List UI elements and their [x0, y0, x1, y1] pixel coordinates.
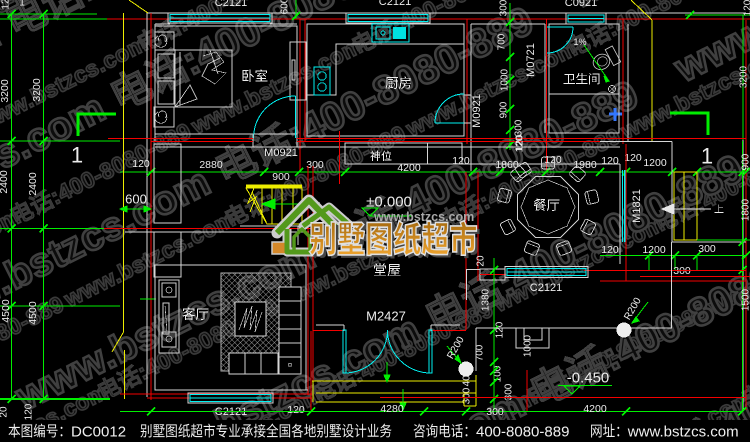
svg-text:120: 120: [452, 155, 470, 167]
svg-text:120: 120: [601, 155, 619, 167]
svg-text:12: 12: [1, 0, 12, 10]
svg-text:-0.450: -0.450: [567, 370, 610, 387]
svg-text:1: 1: [19, 0, 25, 9]
svg-text:1%: 1%: [573, 37, 586, 47]
svg-text:600: 600: [125, 192, 147, 207]
svg-text:1800: 1800: [741, 198, 750, 221]
svg-text:2400: 2400: [27, 172, 39, 196]
svg-text:300: 300: [499, 0, 510, 16]
svg-text:120: 120: [495, 321, 506, 338]
svg-text:M0921: M0921: [264, 147, 298, 159]
svg-text:¤: ¤: [288, 361, 293, 370]
svg-text:900: 900: [272, 171, 290, 183]
svg-text:900: 900: [741, 153, 750, 170]
svg-text:400-8080-889: 400-8080-889: [476, 423, 569, 440]
svg-text:300: 300: [698, 243, 716, 255]
svg-text:1980: 1980: [573, 159, 597, 171]
svg-text:M0921: M0921: [471, 94, 483, 128]
svg-text:300: 300: [514, 119, 525, 136]
svg-text:120: 120: [624, 152, 642, 164]
svg-text:4280: 4280: [380, 403, 404, 415]
svg-text:1: 1: [701, 144, 713, 169]
svg-text:C2121: C2121: [215, 0, 247, 9]
svg-text:2880: 2880: [199, 159, 223, 171]
svg-text:900: 900: [499, 101, 510, 118]
svg-text:300: 300: [306, 159, 324, 171]
svg-text:C0921: C0921: [565, 0, 597, 9]
svg-text:4500: 4500: [0, 299, 12, 323]
svg-text:300: 300: [486, 406, 504, 418]
svg-text:4200: 4200: [397, 162, 421, 174]
svg-text:120: 120: [287, 404, 305, 416]
svg-text:C2121: C2121: [379, 0, 411, 8]
svg-text:700: 700: [497, 33, 508, 50]
svg-text:2400: 2400: [0, 170, 10, 194]
svg-text:1500: 1500: [741, 288, 750, 311]
svg-text:M0721: M0721: [525, 43, 537, 77]
svg-text:120: 120: [24, 403, 35, 420]
svg-text:1000: 1000: [500, 68, 511, 91]
svg-text:20: 20: [0, 406, 10, 418]
svg-text:120: 120: [601, 244, 619, 256]
svg-text:1200: 1200: [642, 244, 666, 256]
svg-text:1: 1: [71, 143, 83, 168]
svg-text:600: 600: [280, 0, 291, 14]
svg-text:3200: 3200: [31, 78, 43, 102]
svg-text:M2427: M2427: [366, 309, 406, 324]
svg-text:120: 120: [132, 158, 150, 170]
svg-text:3200: 3200: [739, 65, 750, 88]
svg-text:1200: 1200: [643, 157, 667, 169]
svg-text:DC0012: DC0012: [71, 423, 126, 440]
svg-text:20: 20: [476, 255, 487, 267]
svg-text:4200: 4200: [583, 403, 607, 415]
svg-text:3200: 3200: [0, 79, 11, 103]
svg-text:4500: 4500: [27, 301, 39, 325]
svg-text:120: 120: [515, 134, 526, 151]
svg-text:120: 120: [743, 0, 750, 16]
svg-text:C2121: C2121: [530, 282, 562, 294]
svg-text:M1821: M1821: [631, 189, 643, 223]
svg-text:www.bstzcs.com: www.bstzcs.com: [627, 423, 739, 440]
svg-text:120: 120: [544, 154, 562, 166]
svg-text:1380: 1380: [481, 288, 492, 311]
